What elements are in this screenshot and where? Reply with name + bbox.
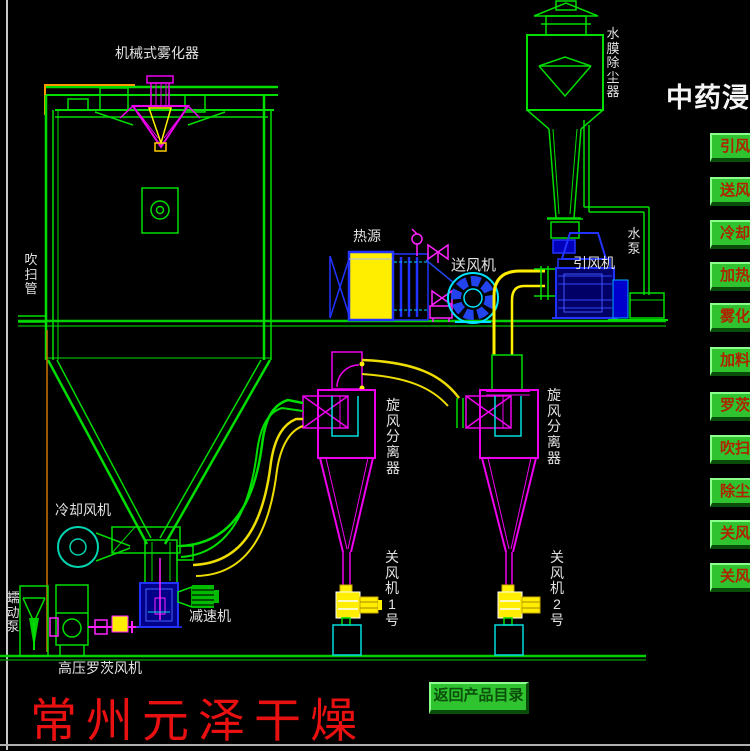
page-title: 中药浸膏 [666,76,750,115]
purge-pipe-label: 吹扫管 [23,253,39,297]
rotary-valve-1 [333,585,382,655]
panel-button-chuisao[interactable]: 吹扫 [710,435,750,464]
brand-title: 常州元泽干燥 [30,682,366,751]
cyclone1-label: 旋风分离器 [385,398,401,476]
panel-button-wuhua[interactable]: 雾化 [710,303,750,332]
roots-blower-label: 高压罗茨风机 [58,661,142,676]
reducer-coupling [178,587,192,607]
panel-button-yinfeng[interactable]: 引风 [710,133,750,162]
sight-glass [142,188,178,233]
interconnect-pipe [362,360,463,428]
panel-button-jiare[interactable]: 加热 [710,262,750,291]
supply-fan [448,273,498,323]
panel-button-guanfeng2[interactable]: 关风 [710,563,750,592]
scada-screen: 机械式雾化器 水膜除尘器 吹扫管 热源 送风机 引风机 水泵 旋风分离器 旋风分… [0,0,750,750]
panel-button-songfeng[interactable]: 送风 [710,177,750,206]
tower-outlet-pipes [181,400,303,576]
cyclone2-label: 旋风分离器 [546,388,562,466]
dust-collector [527,1,603,218]
feed-tank [20,330,48,656]
yellow-elbow-pipe [494,271,545,355]
panel-button-lengque[interactable]: 冷却 [710,220,750,249]
induced-fan-label: 引风机 [573,256,615,271]
cooling-fan [58,527,180,567]
water-pump-label: 水泵 [626,227,642,256]
cyclone-separator-2 [466,390,538,586]
atomizer-label: 机械式雾化器 [115,46,199,61]
cyclone-separator-1 [303,352,375,586]
drying-tower [18,85,278,544]
supply-fan-label: 送风机 [451,258,496,275]
rotary-valve1-label: 关风机1号 [384,550,400,628]
feed-pump-label: 蠕动泵 [5,591,21,635]
panel-button-guanfeng1[interactable]: 关风 [710,520,750,549]
panel-button-luoci[interactable]: 罗茨 [710,392,750,421]
panel-button-chuchen[interactable]: 除尘 [710,478,750,507]
heater [330,252,428,320]
process-diagram [0,0,750,750]
return-catalog-button[interactable]: 返回产品目录 [429,682,529,714]
dust-collector-label: 水膜除尘器 [605,27,621,100]
panel-button-jialiao[interactable]: 加料 [710,347,750,376]
heat-source-label: 热源 [353,229,381,244]
rotary-valve2-label: 关风机2号 [549,550,565,628]
valves [412,229,454,322]
cooling-fan-label: 冷却风机 [55,503,111,518]
reducer-label: 减速机 [189,609,231,624]
roots-blower [50,585,140,656]
rotary-valve-2 [495,585,540,655]
water-pump-body [630,293,664,318]
